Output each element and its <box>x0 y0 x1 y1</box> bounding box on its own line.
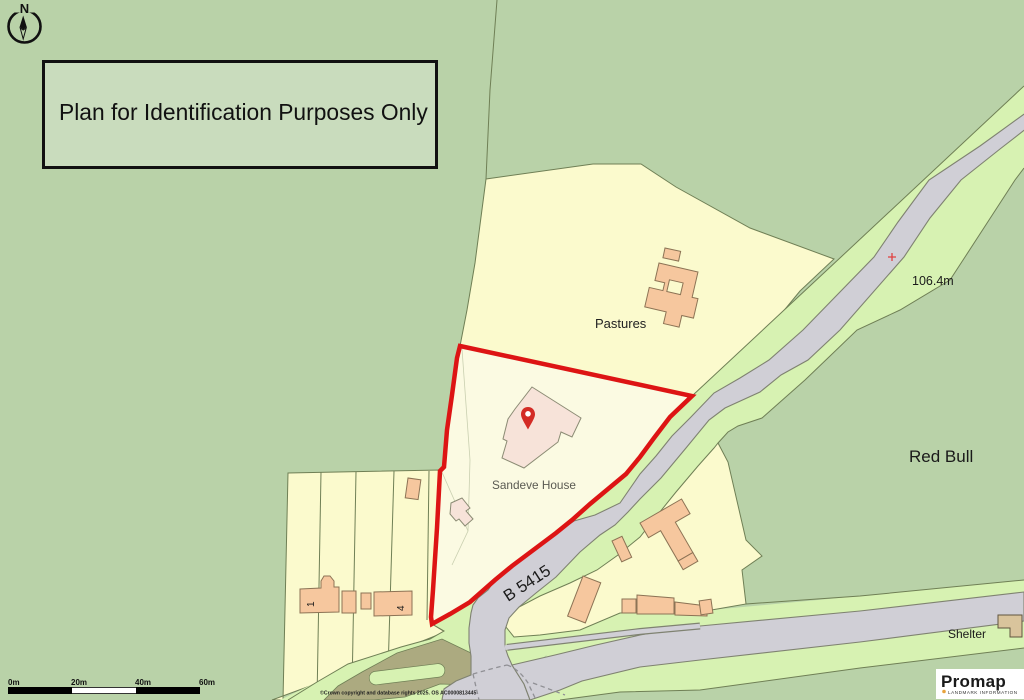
svg-text:Red Bull: Red Bull <box>909 447 973 466</box>
svg-text:Promap: Promap <box>941 672 1006 691</box>
svg-text:LANDMARK INFORMATION: LANDMARK INFORMATION <box>948 690 1018 695</box>
svg-text:N: N <box>20 1 29 16</box>
svg-text:Sandeve House: Sandeve House <box>492 478 576 492</box>
svg-text:1: 1 <box>306 601 317 607</box>
svg-text:106.4m: 106.4m <box>912 274 954 288</box>
svg-text:40m: 40m <box>135 678 151 687</box>
svg-text:4: 4 <box>396 605 407 611</box>
svg-text:0m: 0m <box>8 678 20 687</box>
svg-text:Pastures: Pastures <box>595 316 647 331</box>
svg-text:©Crown copyright and database: ©Crown copyright and database rights 202… <box>320 690 477 697</box>
svg-text:Shelter: Shelter <box>948 627 986 641</box>
svg-text:20m: 20m <box>71 678 87 687</box>
svg-text:60m: 60m <box>199 678 215 687</box>
svg-text:Plan for Identification Purpos: Plan for Identification Purposes Only <box>59 99 428 125</box>
